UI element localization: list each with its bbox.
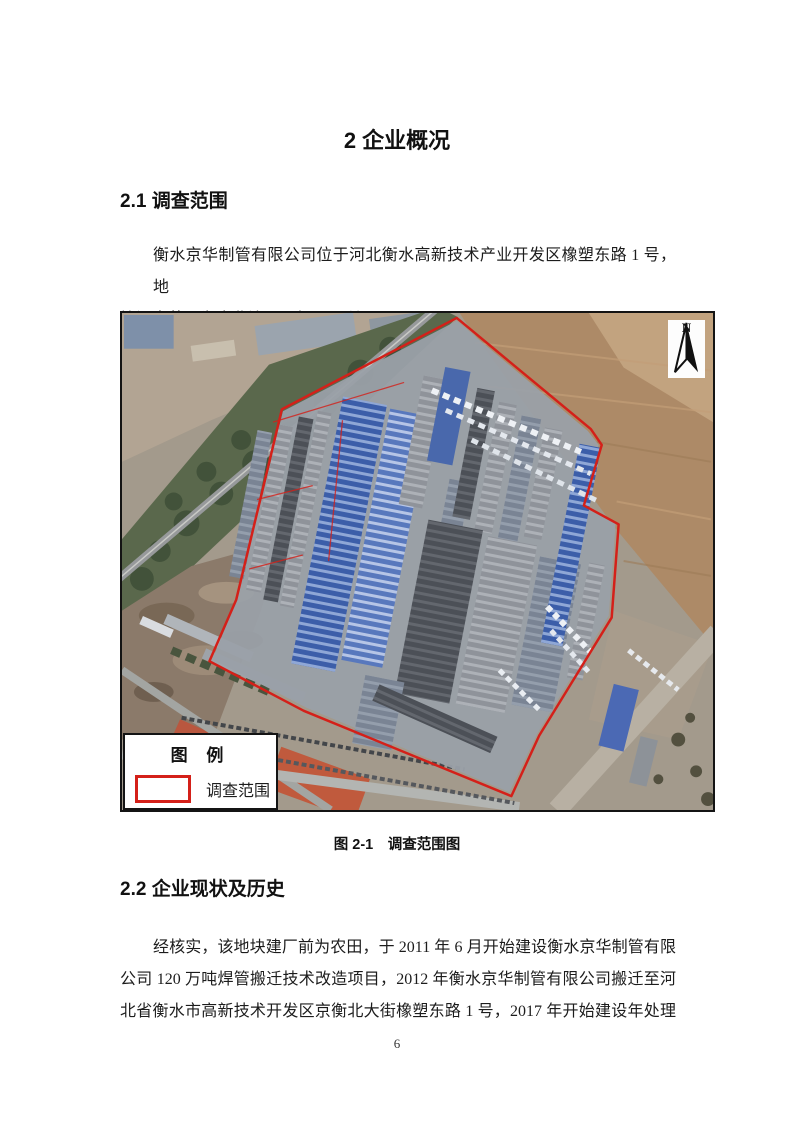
page-number: 6 <box>0 1036 794 1052</box>
survey-scope-figure: N 图 例 调查范围 <box>120 311 715 812</box>
legend-item-label: 调查范围 <box>206 777 270 801</box>
section-heading-2-2: 2.2 企业现状及历史 <box>120 874 285 901</box>
figure-caption: 图 2-1 调查范围图 <box>0 834 794 856</box>
legend-title: 图 例 <box>125 741 276 766</box>
paragraph-history: 经核实，该地块建厂前为农田，于 2011 年 6 月开始建设衡水京华制管有限 公… <box>120 932 676 1028</box>
paragraph-line: 公司 120 万吨焊管搬迁技术改造项目，2012 年衡水京华制管有限公司搬迁至河 <box>120 964 676 996</box>
paragraph-line: 衡水京华制管有限公司位于河北衡水高新技术产业开发区橡塑东路 1 号，地 <box>120 240 676 304</box>
north-arrow-icon <box>668 320 705 378</box>
paragraph-line: 经核实，该地块建厂前为农田，于 2011 年 6 月开始建设衡水京华制管有限 <box>120 932 676 964</box>
chapter-title: 2 企业概况 <box>0 124 794 158</box>
north-arrow: N <box>668 320 705 378</box>
paragraph-line: 北省衡水市高新技术开发区京衡北大街橡塑东路 1 号，2017 年开始建设年处理 <box>120 996 676 1028</box>
legend-swatch <box>135 775 191 803</box>
legend-item: 调查范围 <box>135 775 276 803</box>
section-heading-2-1: 2.1 调查范围 <box>120 186 228 213</box>
map-legend: 图 例 调查范围 <box>123 733 278 810</box>
document-page: 2 企业概况 2.1 调查范围 衡水京华制管有限公司位于河北衡水高新技术产业开发… <box>0 0 794 1123</box>
